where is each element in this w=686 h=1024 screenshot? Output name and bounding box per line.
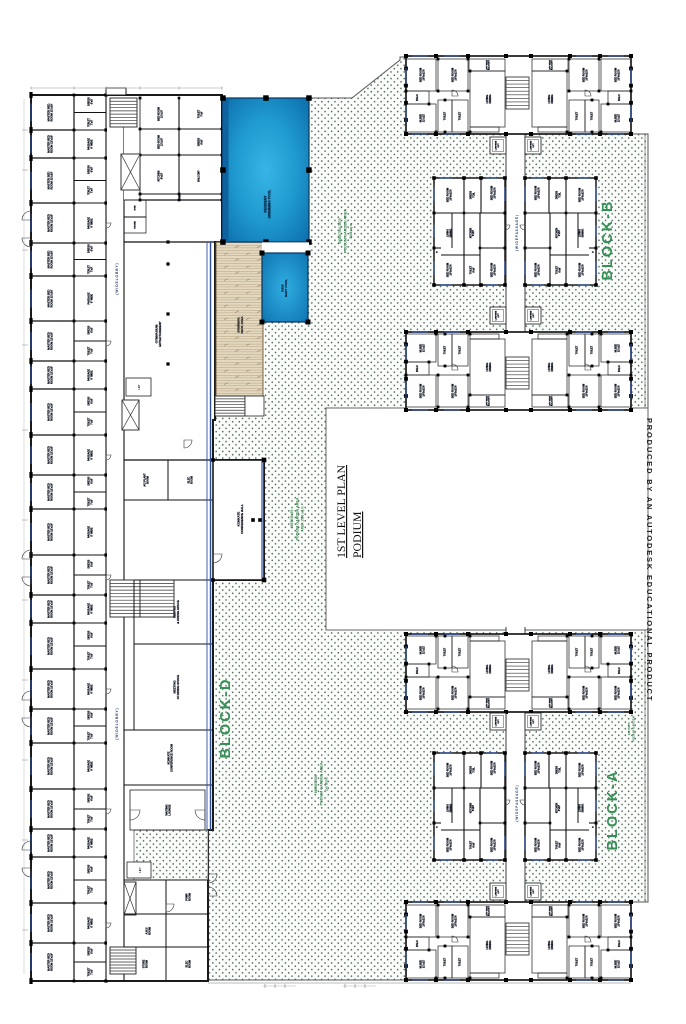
svg-text:10'0x11'6: 10'0x11'6 bbox=[421, 687, 425, 699]
svg-text:TOILET: TOILET bbox=[575, 111, 578, 120]
svg-text:11'x12': 11'x12' bbox=[616, 645, 620, 654]
svg-text:BALC: BALC bbox=[618, 940, 621, 947]
svg-text:TOILET: TOILET bbox=[590, 957, 593, 966]
svg-text:9455070x13970: 9455070x13970 bbox=[338, 218, 342, 243]
svg-text:DINING: DINING bbox=[581, 229, 584, 238]
svg-text:TOILET: TOILET bbox=[590, 345, 593, 354]
svg-text:ROOM 12'x10': ROOM 12'x10' bbox=[50, 566, 54, 584]
svg-text:TOILET: TOILET bbox=[458, 647, 461, 656]
svg-text:ROOM 12'x10': ROOM 12'x10' bbox=[50, 600, 54, 618]
svg-text:BALC: BALC bbox=[416, 667, 419, 674]
svg-text:7'x5': 7'x5' bbox=[90, 348, 93, 354]
svg-text:11'x12': 11'x12' bbox=[421, 343, 425, 352]
svg-text:7'x5': 7'x5' bbox=[90, 582, 93, 588]
svg-text:6'x5': 6'x5' bbox=[90, 712, 93, 718]
svg-text:10'0x11'6: 10'0x11'6 bbox=[616, 687, 620, 699]
svg-text:12'x10': 12'x10' bbox=[160, 110, 163, 119]
svg-text:6' WIDE: 6' WIDE bbox=[90, 450, 93, 460]
svg-text:10'0x11'6: 10'0x11'6 bbox=[584, 385, 588, 397]
svg-text:BALCONY: BALCONY bbox=[488, 395, 491, 406]
svg-text:ROOM 12'x10': ROOM 12'x10' bbox=[50, 914, 54, 932]
svg-text:6'x5': 6'x5' bbox=[90, 166, 93, 172]
svg-text:10'0x11'6: 10'0x11'6 bbox=[584, 687, 588, 699]
svg-text:DINING: DINING bbox=[550, 940, 554, 949]
svg-text:& DINING SPACE: & DINING SPACE bbox=[176, 600, 180, 624]
svg-text:LIFT: LIFT bbox=[138, 867, 142, 873]
svg-text:ROOM 12'x10': ROOM 12'x10' bbox=[50, 403, 54, 421]
svg-text:7'x5': 7'x5' bbox=[90, 419, 93, 425]
svg-text:10'0x11'6: 10'0x11'6 bbox=[493, 264, 497, 276]
svg-text:7'x5': 7'x5' bbox=[90, 119, 93, 125]
svg-text:10'0x11'6: 10'0x11'6 bbox=[537, 762, 541, 774]
svg-text:ROOM 12'x10': ROOM 12'x10' bbox=[50, 171, 54, 189]
svg-text:TOILET: TOILET bbox=[443, 647, 446, 656]
svg-text:DINING: DINING bbox=[488, 664, 492, 673]
svg-text:( W I D E P A S S A G E ): ( W I D E P A S S A G E ) bbox=[515, 215, 519, 251]
svg-text:TOILET: TOILET bbox=[458, 111, 461, 120]
svg-text:DINING: DINING bbox=[550, 664, 554, 673]
svg-text:BLOCK-A: BLOCK-A bbox=[605, 770, 621, 851]
svg-text:8'x10': 8'x10' bbox=[559, 229, 561, 236]
svg-text:10'0x11'6: 10'0x11'6 bbox=[449, 839, 453, 851]
svg-text:6'x8': 6'x8' bbox=[472, 267, 475, 273]
svg-text:ROOM 12'x10': ROOM 12'x10' bbox=[50, 523, 54, 541]
svg-text:TOILET: TOILET bbox=[458, 957, 461, 966]
svg-text:10'0x11'6: 10'0x11'6 bbox=[449, 189, 453, 201]
svg-text:10'0x11'6: 10'0x11'6 bbox=[581, 264, 585, 276]
svg-text:TOIL: TOIL bbox=[558, 192, 561, 198]
svg-text:6' WIDE: 6' WIDE bbox=[90, 294, 93, 304]
svg-text:BLOCK-D: BLOCK-D bbox=[218, 678, 234, 759]
svg-text:6' WIDE: 6' WIDE bbox=[90, 218, 93, 228]
svg-text:7'x5': 7'x5' bbox=[200, 111, 203, 117]
svg-text:6' WIDE: 6' WIDE bbox=[90, 604, 93, 614]
svg-text:BALCONY: BALCONY bbox=[488, 59, 491, 70]
svg-text:6'x5': 6'x5' bbox=[90, 632, 93, 638]
svg-text:( W I D E P A S S A G E ): ( W I D E P A S S A G E ) bbox=[515, 785, 519, 821]
svg-text:KITCHEN: KITCHEN bbox=[557, 228, 559, 239]
svg-text:CONFERENCE HALL: CONFERENCE HALL bbox=[240, 504, 244, 534]
svg-text:PODIUM: PODIUM bbox=[350, 511, 364, 558]
svg-text:LIVING: LIVING bbox=[180, 193, 182, 201]
svg-text:6' WIDE: 6' WIDE bbox=[90, 370, 93, 380]
svg-text:10'0x11'6: 10'0x11'6 bbox=[493, 762, 497, 774]
svg-text:TOILET: TOILET bbox=[458, 345, 461, 354]
svg-text:7'x5': 7'x5' bbox=[90, 499, 93, 505]
svg-text:IN DINING SPACE: IN DINING SPACE bbox=[176, 675, 180, 699]
svg-text:12375070: 12375070 bbox=[627, 722, 631, 735]
svg-text:10'0x11'6: 10'0x11'6 bbox=[493, 839, 497, 851]
svg-text:11'x12': 11'x12' bbox=[616, 113, 620, 122]
svg-text:10'0x11'6: 10'0x11'6 bbox=[537, 839, 541, 851]
svg-text:ROOM 12'x10': ROOM 12'x10' bbox=[50, 680, 54, 698]
svg-text:10'0x11'6: 10'0x11'6 bbox=[453, 385, 457, 397]
svg-text:11'x12': 11'x12' bbox=[421, 959, 425, 968]
svg-text:6'x5': 6'x5' bbox=[90, 948, 93, 954]
svg-text:10'0x11'6: 10'0x11'6 bbox=[616, 385, 620, 397]
svg-text:6'x8': 6'x8' bbox=[472, 842, 475, 848]
svg-text:DINING: DINING bbox=[488, 94, 492, 103]
svg-text:KITCHEN: KITCHEN bbox=[471, 228, 473, 239]
svg-text:per dims: per dims bbox=[325, 777, 329, 791]
svg-text:4567030x70: 4567030x70 bbox=[290, 509, 294, 528]
svg-text:LOUNGE: LOUNGE bbox=[168, 804, 172, 815]
svg-text:DINING: DINING bbox=[550, 94, 554, 103]
svg-text:ROOM 12'x10': ROOM 12'x10' bbox=[50, 834, 54, 852]
svg-text:ROOM: ROOM bbox=[188, 893, 191, 901]
svg-text:10'0x11'6: 10'0x11'6 bbox=[421, 385, 425, 397]
svg-text:10'0x11'6: 10'0x11'6 bbox=[449, 764, 453, 776]
svg-text:BALC: BALC bbox=[416, 940, 419, 947]
svg-text:10'0x11'6: 10'0x11'6 bbox=[584, 915, 588, 927]
svg-text:10'0x11'6: 10'0x11'6 bbox=[616, 915, 620, 927]
svg-text:6' WIDE: 6' WIDE bbox=[90, 918, 93, 928]
svg-text:10'0x11'6: 10'0x11'6 bbox=[537, 264, 541, 276]
svg-text:DECK AREA: DECK AREA bbox=[240, 316, 244, 334]
svg-text:ROOM: ROOM bbox=[145, 960, 148, 968]
svg-text:8'x10': 8'x10' bbox=[559, 804, 561, 811]
svg-text:AREA 1560 sq.m: AREA 1560 sq.m bbox=[301, 506, 305, 531]
svg-text:6'x5': 6'x5' bbox=[90, 245, 93, 251]
svg-text:ENTERTAINMENT: ENTERTAINMENT bbox=[158, 321, 162, 347]
svg-text:6'x5': 6'x5' bbox=[90, 795, 93, 801]
svg-text:10'0x11'6: 10'0x11'6 bbox=[421, 915, 425, 927]
svg-text:STORE: STORE bbox=[135, 221, 137, 229]
svg-text:7'x5': 7'x5' bbox=[90, 887, 93, 893]
svg-text:KITCHEN: KITCHEN bbox=[557, 803, 559, 814]
svg-text:TOIL: TOIL bbox=[472, 767, 475, 773]
svg-text:ROOM 12'x10': ROOM 12'x10' bbox=[50, 953, 54, 971]
svg-text:6' WIDE: 6' WIDE bbox=[90, 139, 93, 149]
svg-text:10'0x11'6: 10'0x11'6 bbox=[581, 189, 585, 201]
svg-text:BALCONY: BALCONY bbox=[488, 905, 491, 916]
svg-text:ROOM 12'x10': ROOM 12'x10' bbox=[50, 871, 54, 889]
svg-text:PRODUCED BY AN AUTODESK EDUCAT: PRODUCED BY AN AUTODESK EDUCATIONAL PROD… bbox=[645, 418, 654, 702]
svg-text:PODIUM GARDEN AREA: PODIUM GARDEN AREA bbox=[296, 497, 300, 540]
svg-text:6'x5': 6'x5' bbox=[90, 327, 93, 333]
svg-text:6'x5': 6'x5' bbox=[90, 866, 93, 872]
svg-text:8'x10': 8'x10' bbox=[473, 229, 475, 236]
svg-text:BALCONY: BALCONY bbox=[551, 697, 554, 708]
svg-text:11'x12': 11'x12' bbox=[616, 343, 620, 352]
svg-text:BALC: BALC bbox=[416, 94, 419, 101]
svg-text:BALCONY: BALCONY bbox=[551, 395, 554, 406]
svg-text:11'x12': 11'x12' bbox=[421, 113, 425, 122]
svg-text:TOILET: TOILET bbox=[590, 111, 593, 120]
svg-text:6'x5': 6'x5' bbox=[90, 478, 93, 484]
svg-text:TOIL: TOIL bbox=[472, 192, 475, 198]
svg-text:BALC: BALC bbox=[416, 365, 419, 372]
svg-text:11'x12': 11'x12' bbox=[421, 645, 425, 654]
svg-text:PODIUM GARDEN: PODIUM GARDEN bbox=[632, 716, 636, 742]
svg-text:6' WIDE: 6' WIDE bbox=[90, 527, 93, 537]
svg-text:4046 sq.m: 4046 sq.m bbox=[349, 223, 353, 239]
svg-text:ROOM 12'x10': ROOM 12'x10' bbox=[50, 446, 54, 464]
svg-text:TOILET: TOILET bbox=[590, 647, 593, 656]
svg-text:TOIL: TOIL bbox=[558, 767, 561, 773]
svg-text:8'x10': 8'x10' bbox=[160, 172, 163, 179]
svg-text:DINING: DINING bbox=[581, 804, 584, 813]
svg-text:7'x5': 7'x5' bbox=[90, 969, 93, 975]
svg-text:3800632530: 3800632530 bbox=[314, 774, 318, 793]
svg-text:BABY POOL: BABY POOL bbox=[284, 279, 288, 297]
svg-text:DINING: DINING bbox=[488, 940, 492, 949]
svg-text:10'0x11'6: 10'0x11'6 bbox=[453, 915, 457, 927]
svg-text:8'x10': 8'x10' bbox=[473, 804, 475, 811]
svg-text:ROOM: ROOM bbox=[146, 476, 149, 484]
svg-text:10'0x11'6: 10'0x11'6 bbox=[584, 69, 588, 81]
svg-text:KITCHEN: KITCHEN bbox=[471, 803, 473, 814]
svg-text:10'0x11'6: 10'0x11'6 bbox=[581, 839, 585, 851]
svg-text:10'0x11'6: 10'0x11'6 bbox=[493, 187, 497, 199]
svg-text:ROOM: ROOM bbox=[190, 476, 193, 483]
svg-text:TOILET: TOILET bbox=[443, 957, 446, 966]
svg-text:BALCONY: BALCONY bbox=[551, 59, 554, 70]
svg-text:CONFERENCE ROOM: CONFERENCE ROOM bbox=[170, 743, 174, 772]
svg-text:PODIUM GARDEN AREA: PODIUM GARDEN AREA bbox=[320, 762, 324, 805]
svg-text:ROOM 12'x10': ROOM 12'x10' bbox=[50, 800, 54, 818]
svg-text:ROOM 12'x10': ROOM 12'x10' bbox=[50, 483, 54, 501]
svg-text:ROOM 12'x10': ROOM 12'x10' bbox=[50, 135, 54, 153]
svg-text:10'0x11'6: 10'0x11'6 bbox=[421, 69, 425, 81]
svg-text:BALCONY: BALCONY bbox=[551, 905, 554, 916]
svg-text:TOILET: TOILET bbox=[575, 957, 578, 966]
svg-text:6'x8': 6'x8' bbox=[558, 842, 561, 848]
svg-text:7'x5': 7'x5' bbox=[90, 816, 93, 822]
svg-text:7'x5': 7'x5' bbox=[90, 266, 93, 272]
svg-text:BLOCK-B: BLOCK-B bbox=[600, 200, 616, 281]
svg-text:ROOM 12'x10': ROOM 12'x10' bbox=[50, 103, 54, 121]
svg-text:11'x12': 11'x12' bbox=[616, 959, 620, 968]
svg-text:ROOM 12'x10': ROOM 12'x10' bbox=[50, 250, 54, 268]
svg-text:TOILET: TOILET bbox=[575, 647, 578, 656]
svg-text:SWIMMING POOL: SWIMMING POOL bbox=[267, 190, 271, 219]
svg-text:( W I D E L O B B Y ): ( W I D E L O B B Y ) bbox=[115, 708, 119, 739]
svg-text:BALCONY: BALCONY bbox=[488, 697, 491, 708]
svg-text:ROOM 12'x10': ROOM 12'x10' bbox=[50, 366, 54, 384]
svg-text:6'x5': 6'x5' bbox=[200, 139, 203, 145]
svg-text:6'x8': 6'x8' bbox=[558, 267, 561, 273]
svg-text:ROOM 12'x10': ROOM 12'x10' bbox=[50, 637, 54, 655]
svg-text:10'0x11'6: 10'0x11'6 bbox=[453, 69, 457, 81]
svg-text:( W I D E L O B B Y ): ( W I D E L O B B Y ) bbox=[115, 263, 119, 294]
svg-text:7'x5': 7'x5' bbox=[90, 733, 93, 739]
svg-text:10'0x11'6: 10'0x11'6 bbox=[449, 264, 453, 276]
svg-text:DINING: DINING bbox=[488, 362, 492, 371]
svg-text:PODIUM GARDEN AREA: PODIUM GARDEN AREA bbox=[344, 209, 348, 254]
svg-text:6' WIDE: 6' WIDE bbox=[90, 761, 93, 771]
svg-text:DINING: DINING bbox=[449, 804, 452, 813]
svg-text:10'0x11'6: 10'0x11'6 bbox=[453, 687, 457, 699]
svg-text:DINING: DINING bbox=[550, 362, 554, 371]
svg-text:BALCONY: BALCONY bbox=[198, 170, 201, 182]
svg-text:TOILET: TOILET bbox=[575, 345, 578, 354]
svg-text:ROOM 12'x10': ROOM 12'x10' bbox=[50, 214, 54, 232]
svg-text:BALC: BALC bbox=[618, 94, 621, 101]
svg-text:TOILET: TOILET bbox=[443, 111, 446, 120]
svg-text:DINING: DINING bbox=[449, 229, 452, 238]
svg-text:6' WIDE: 6' WIDE bbox=[90, 838, 93, 848]
svg-text:12'x10': 12'x10' bbox=[160, 138, 163, 147]
svg-text:6'x5': 6'x5' bbox=[90, 561, 93, 567]
svg-text:6'x5': 6'x5' bbox=[90, 398, 93, 404]
svg-text:BALC: BALC bbox=[618, 667, 621, 674]
svg-text:10'0x11'6: 10'0x11'6 bbox=[581, 764, 585, 776]
svg-text:ROOM 12'x10': ROOM 12'x10' bbox=[50, 289, 54, 307]
svg-text:6' WIDE: 6' WIDE bbox=[90, 684, 93, 694]
svg-text:1ST LEVEL PLAN: 1ST LEVEL PLAN bbox=[334, 464, 348, 558]
svg-text:ROOM 12'x10': ROOM 12'x10' bbox=[50, 757, 54, 775]
svg-text:LIFT: LIFT bbox=[138, 384, 141, 390]
svg-text:7'x5': 7'x5' bbox=[90, 653, 93, 659]
svg-text:ROOM 12'x10': ROOM 12'x10' bbox=[50, 332, 54, 350]
svg-text:6'x5': 6'x5' bbox=[90, 98, 93, 104]
svg-text:ROOM 12'x10': ROOM 12'x10' bbox=[50, 717, 54, 735]
svg-text:10'0x11'6: 10'0x11'6 bbox=[537, 187, 541, 199]
svg-text:7'x5': 7'x5' bbox=[90, 187, 93, 193]
svg-text:GYM: GYM bbox=[135, 205, 137, 210]
svg-text:ROOM: ROOM bbox=[188, 960, 191, 968]
svg-text:BALC: BALC bbox=[618, 365, 621, 372]
svg-text:10'0x11'6: 10'0x11'6 bbox=[616, 69, 620, 81]
svg-text:ROOM: ROOM bbox=[148, 927, 151, 935]
svg-text:TOILET: TOILET bbox=[443, 345, 446, 354]
